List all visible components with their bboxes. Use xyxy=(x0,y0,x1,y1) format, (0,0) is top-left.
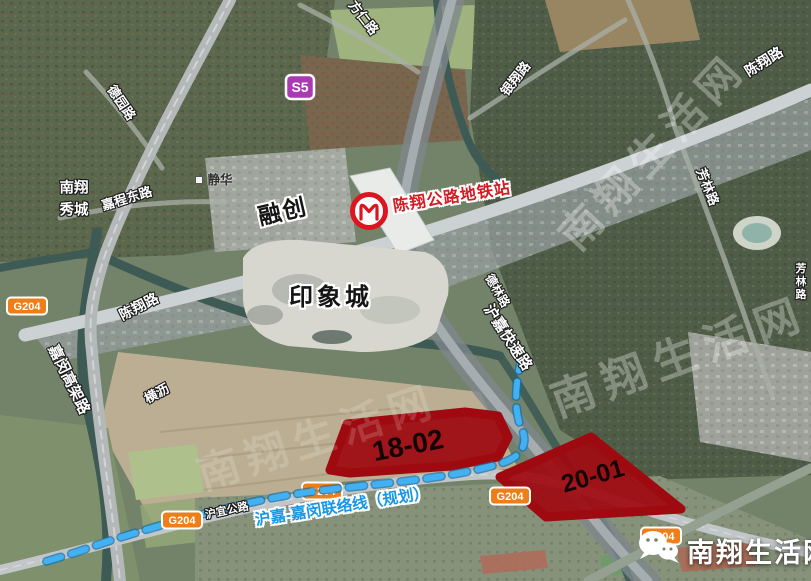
jinghua-poi-marker xyxy=(195,176,203,184)
road-label-fanglin-edge: 芳林路 xyxy=(794,263,806,302)
place-label-nanxiang-xiucheng: 南翔 秀城 xyxy=(60,178,89,222)
place-label-jinghua: 静华 xyxy=(207,174,232,188)
badge-s5: S5 xyxy=(286,75,314,99)
place-label-nanxiang-line2: 秀城 xyxy=(60,200,89,222)
wechat-icon xyxy=(635,527,683,567)
site-logo: 南翔生活网 xyxy=(635,527,811,571)
map-canvas: G204 S5 G204 G204 G204 G204 xyxy=(0,0,811,581)
svg-text:G204: G204 xyxy=(14,301,42,313)
svg-text:S5: S5 xyxy=(291,79,308,95)
place-label-yinxiangcheng: 印象城 xyxy=(289,285,373,311)
metro-logo-icon xyxy=(353,195,386,228)
place-label-nanxiang-line1: 南翔 xyxy=(60,178,89,200)
site-logo-text: 南翔生活网 xyxy=(687,531,811,570)
badge-g204-southwest: G204 xyxy=(162,512,202,529)
badge-g204-middle: G204 xyxy=(490,488,530,505)
svg-text:G204: G204 xyxy=(497,491,525,503)
svg-text:G204: G204 xyxy=(169,515,197,527)
badge-g204-west: G204 xyxy=(7,298,47,315)
